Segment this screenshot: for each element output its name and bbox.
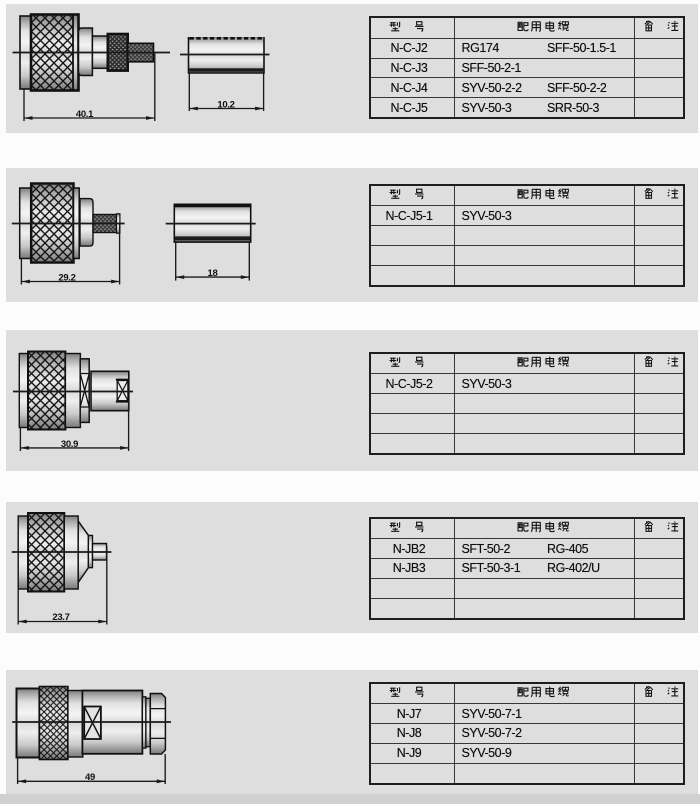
svg-text:23.7: 23.7 <box>52 612 69 623</box>
svg-text:40.1: 40.1 <box>76 109 94 120</box>
svg-text:49: 49 <box>85 772 95 783</box>
svg-text:30.9: 30.9 <box>61 439 78 450</box>
svg-text:29.2: 29.2 <box>58 272 75 283</box>
svg-text:18: 18 <box>208 268 218 279</box>
svg-text:10.2: 10.2 <box>217 99 234 110</box>
